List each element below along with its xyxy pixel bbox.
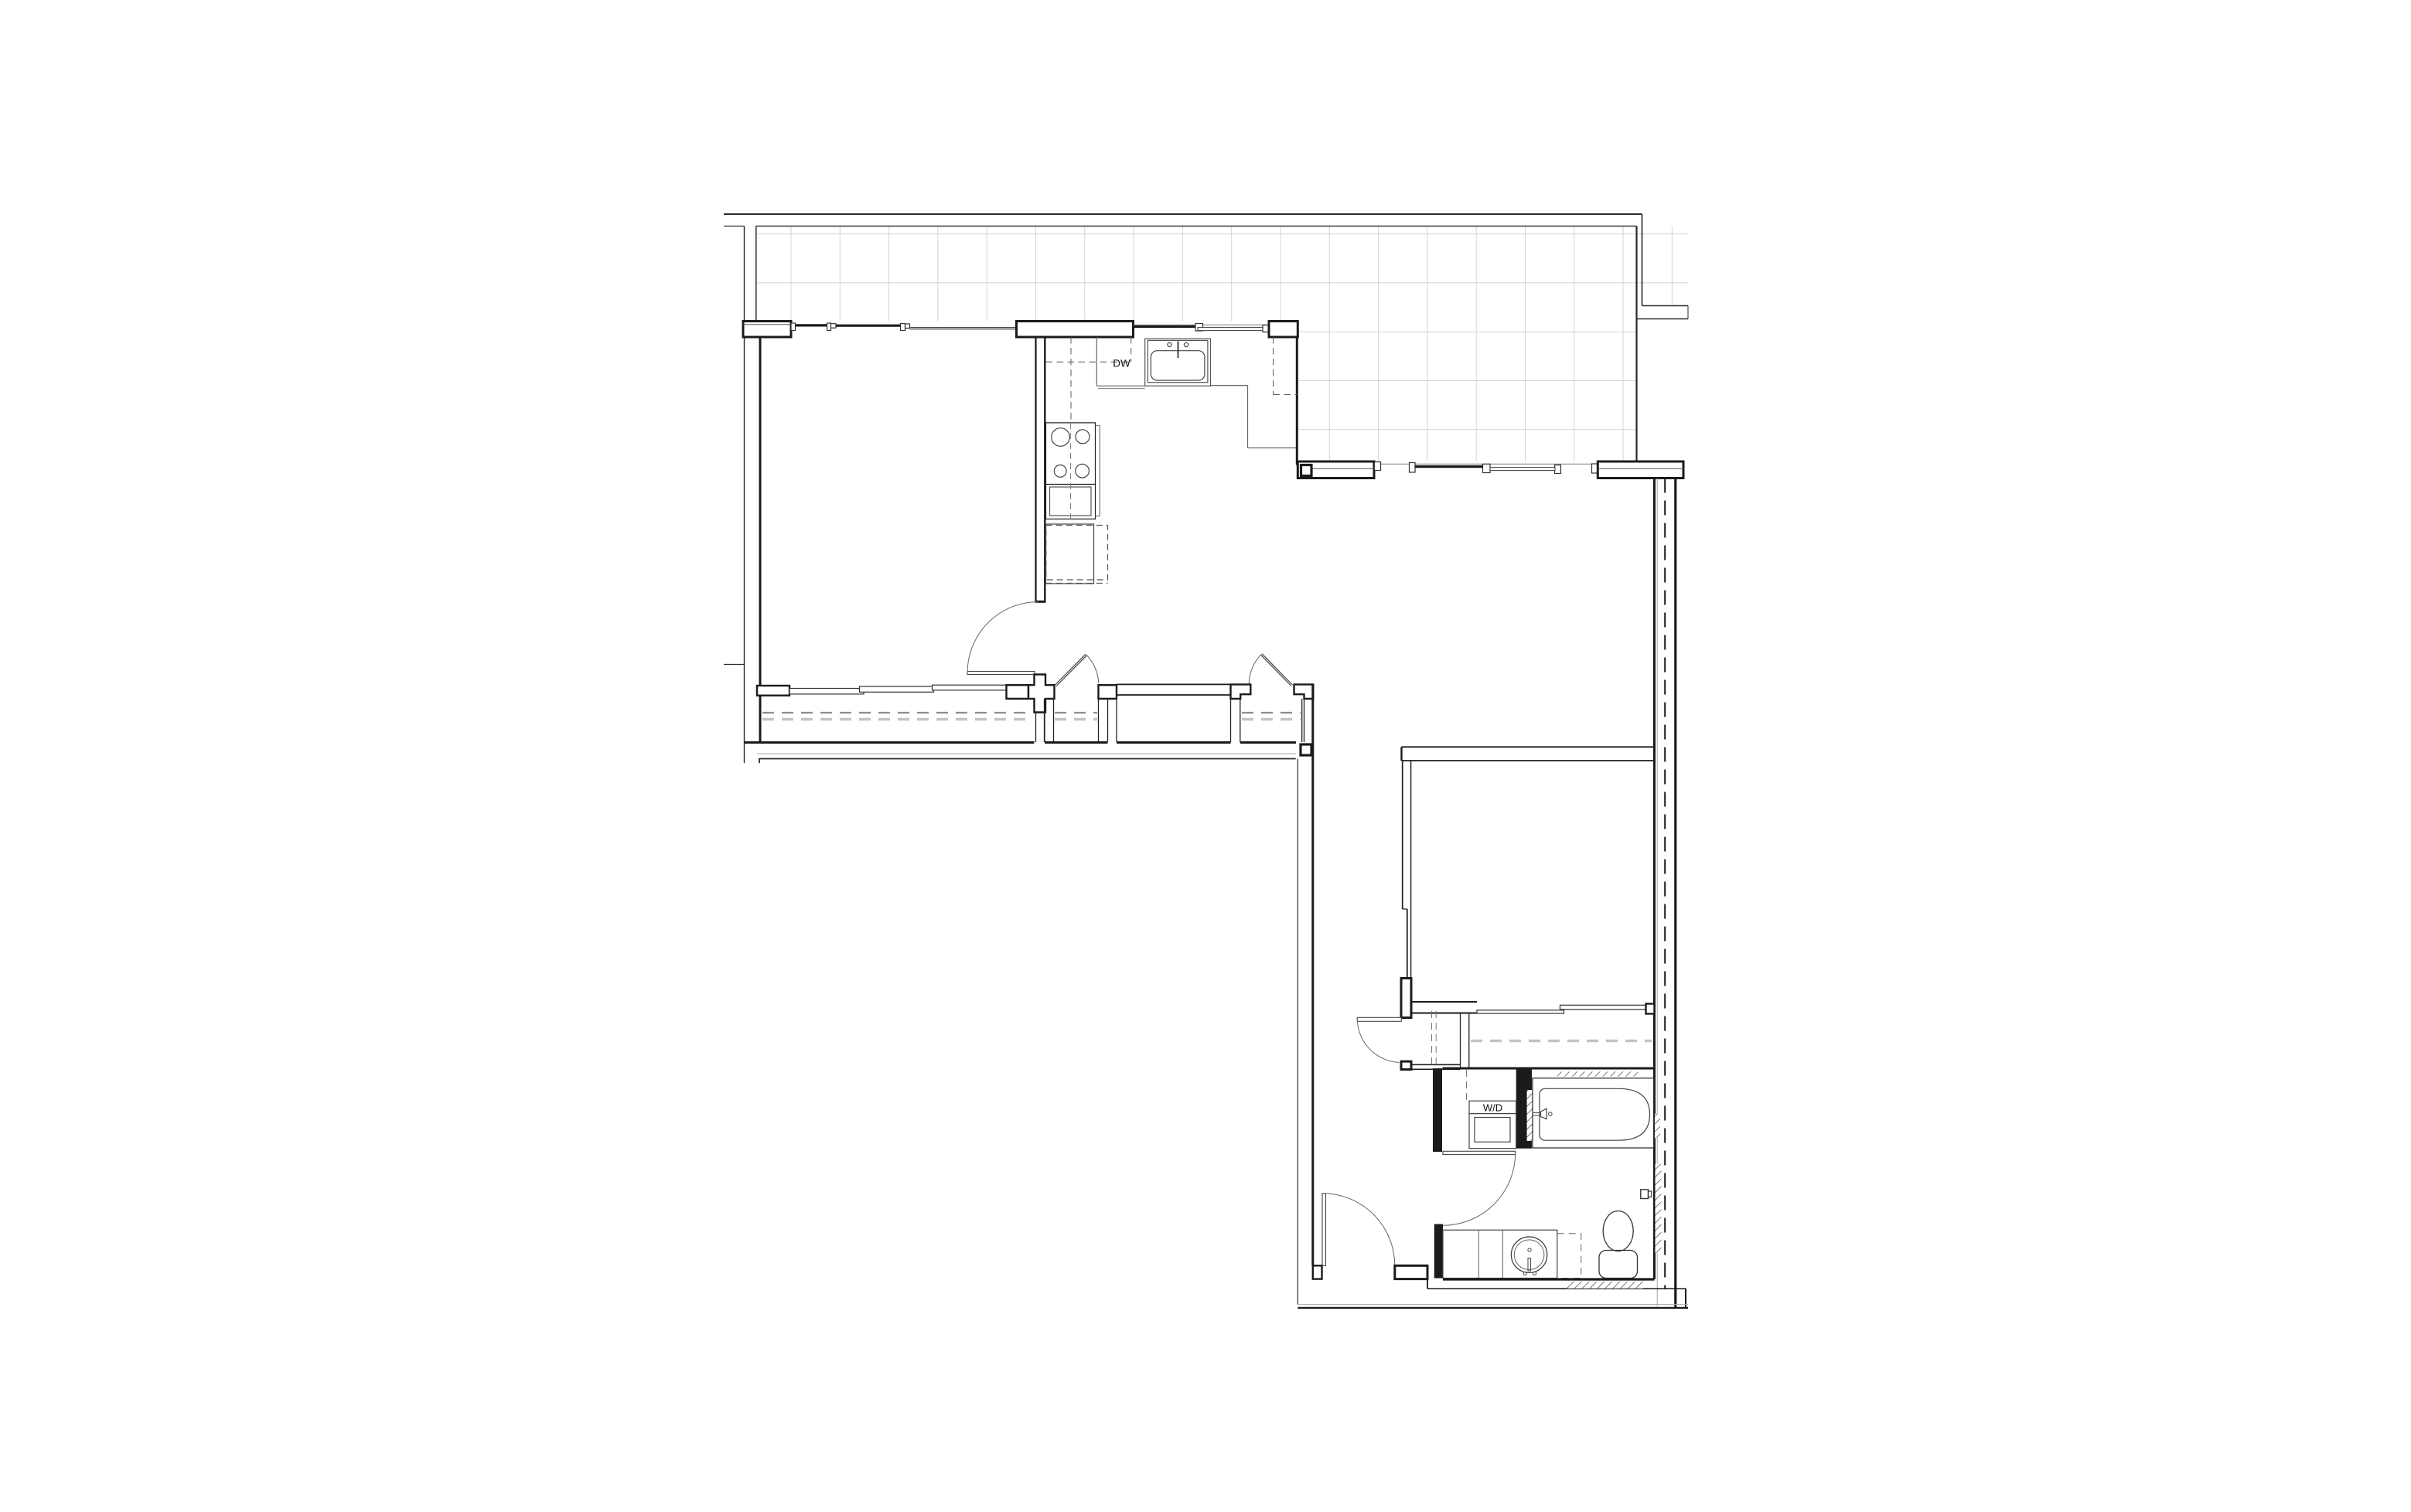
svg-text:DW: DW	[1113, 358, 1130, 369]
svg-text:W/D: W/D	[1483, 1102, 1502, 1114]
